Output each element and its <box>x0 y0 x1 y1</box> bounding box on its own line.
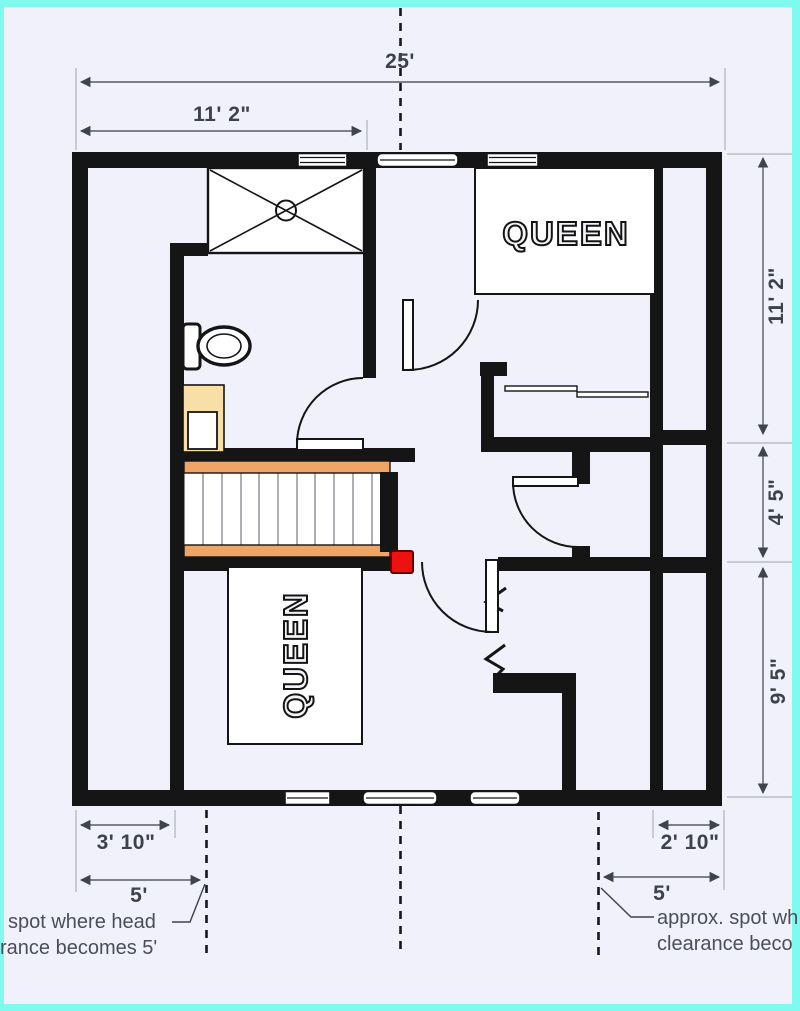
queen-bed-top-label: QUEEN <box>502 215 629 253</box>
window-top-2 <box>377 154 458 167</box>
annotation-left-line2: rance becomes 5' <box>0 935 157 961</box>
closet-rod <box>505 386 648 397</box>
shower-stall <box>208 168 364 253</box>
page-frame-top <box>0 0 800 7</box>
toilet <box>183 324 250 369</box>
sink <box>188 412 217 449</box>
window-bottom-2 <box>363 792 437 805</box>
bedroom-top-right-door <box>403 300 478 370</box>
annotation-left-line1: spot where head <box>8 909 156 935</box>
queen-bed-bottom-label: QUEEN <box>277 591 315 718</box>
window-top-3 <box>487 154 538 167</box>
annotation-right-line2: clearance beco <box>657 931 793 957</box>
annotation-right-line1: approx. spot wh <box>657 905 798 931</box>
stair-rail-bottom <box>184 545 390 557</box>
bathroom-door <box>297 378 363 450</box>
dim-upper-left-width: 11' 2" <box>193 103 251 127</box>
window-bottom-3 <box>470 792 520 805</box>
page-frame-bottom <box>0 1004 800 1011</box>
dim-right-lower-height: 9' 5" <box>767 658 791 705</box>
dim-overall-width: 25' <box>385 50 415 74</box>
window-top-1 <box>298 154 347 167</box>
bottom-right-room-door <box>422 560 498 632</box>
annotation-leaders <box>172 884 654 922</box>
dim-lower-left-width: 3' 10" <box>97 831 156 855</box>
dim-lower-right-width: 2' 10" <box>661 831 720 855</box>
bathroom-vanity <box>183 385 224 452</box>
dim-lower-right-clearance: 5' <box>653 882 671 906</box>
page-frame-right <box>792 0 800 1011</box>
page-frame-left <box>0 0 4 1011</box>
stair-rail-top <box>184 461 390 473</box>
dim-right-middle-height: 4' 5" <box>765 479 789 526</box>
dim-lower-left-clearance: 5' <box>130 884 148 908</box>
head-clearance-marker <box>391 551 413 573</box>
dim-right-upper-height: 11' 2" <box>765 267 789 325</box>
floor-plan-drawing <box>0 0 800 1011</box>
window-bottom-1 <box>285 792 330 805</box>
middle-right-room-door <box>513 477 578 547</box>
staircase <box>184 461 398 557</box>
floor-plan-canvas: 25' 11' 2" 11' 2" 4' 5" 9' 5" 3' 10" 5' … <box>0 0 800 1011</box>
